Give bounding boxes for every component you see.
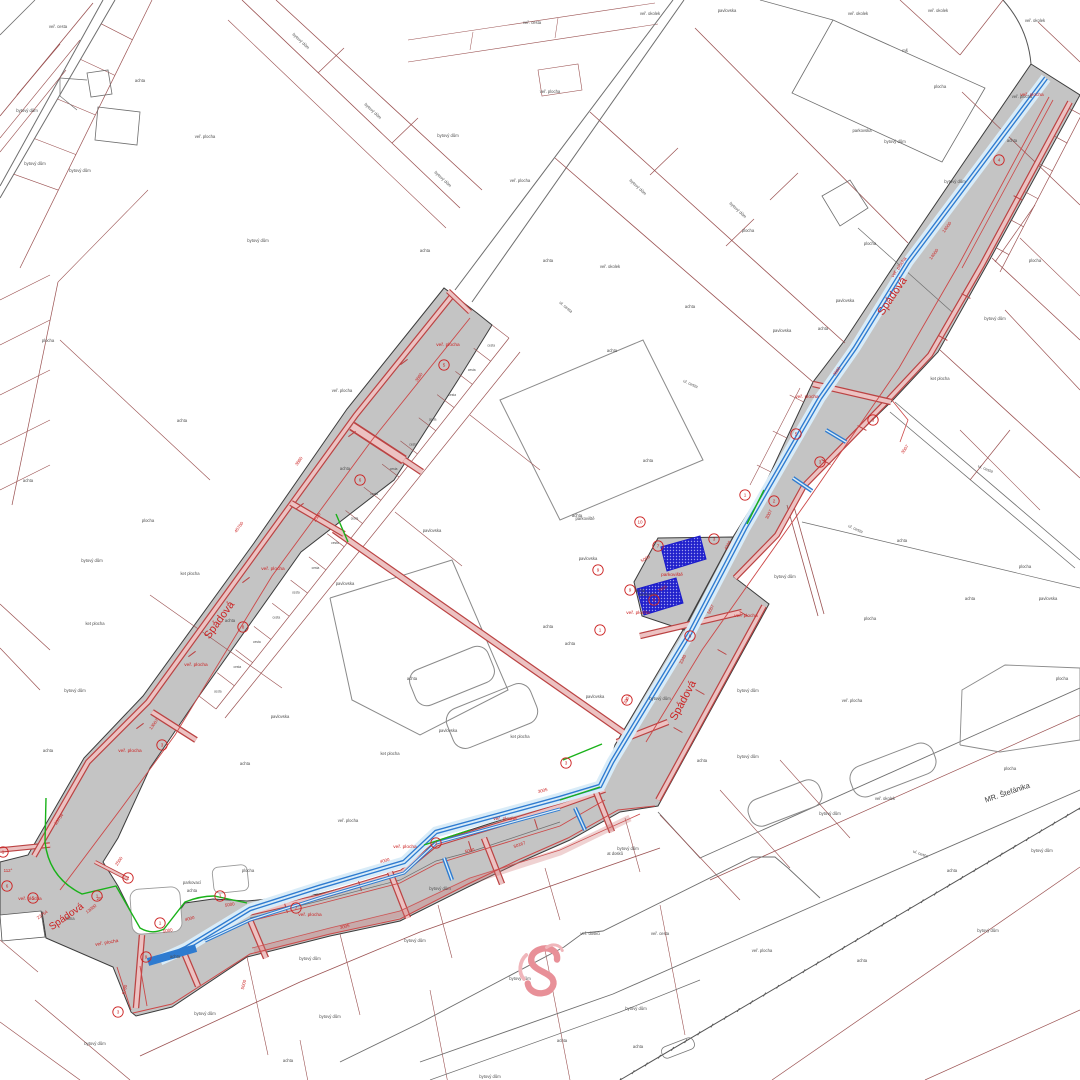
svg-text:pavlovska: pavlovska [773,328,792,333]
svg-text:bytový dům: bytový dům [81,558,103,563]
svg-text:1: 1 [159,921,162,926]
svg-text:plocha: plocha [864,616,877,621]
svg-text:achta: achta [135,78,146,83]
svg-text:7: 7 [295,906,298,911]
svg-text:cesta: cesta [331,541,339,545]
svg-text:112°: 112° [4,868,13,873]
svg-text:bytový dům: bytový dům [299,956,321,961]
svg-text:9: 9 [629,588,632,593]
svg-text:5: 5 [443,363,446,368]
svg-text:bytový dům: bytový dům [24,161,46,166]
svg-text:mš: mš [902,48,908,53]
svg-text:9: 9 [145,955,148,960]
svg-text:veř. plocha: veř. plocha [752,948,773,953]
svg-text:achta: achta [543,258,554,263]
svg-text:plocha: plocha [742,228,755,233]
svg-text:achta: achta [857,958,868,963]
svg-text:pavlovska: pavlovska [836,298,855,303]
svg-text:cesta: cesta [468,368,476,372]
svg-text:plocha: plocha [1056,676,1069,681]
svg-text:3: 3 [161,743,164,748]
svg-text:veř. plocha: veř. plocha [510,178,531,183]
svg-text:veř. plocha: veř. plocha [436,342,460,348]
svg-text:6: 6 [6,884,9,889]
svg-text:veř. cesta: veř. cesta [523,20,542,25]
svg-text:5: 5 [32,896,35,901]
svg-text:veř. okolek: veř. okolek [600,264,621,269]
svg-text:veř. plocha: veř. plocha [393,844,417,850]
svg-text:3: 3 [117,1010,120,1015]
svg-text:veř. plocha: veř. plocha [795,394,819,400]
svg-text:veř. cesta: veř. cesta [651,931,670,936]
svg-text:achta: achta [897,538,908,543]
svg-text:3: 3 [819,460,822,465]
svg-text:achta: achta [607,348,618,353]
svg-text:pavlovska: pavlovska [423,528,442,533]
svg-text:cesta: cesta [351,517,359,521]
svg-text:plocha: plocha [864,241,877,246]
svg-text:ket plocha: ket plocha [180,571,200,576]
svg-text:veř. okolek: veř. okolek [848,11,869,16]
svg-text:pavlovska: pavlovska [718,8,737,13]
svg-text:veř. plocha: veř. plocha [338,818,359,823]
svg-text:achta: achta [543,624,554,629]
svg-text:achta: achta [187,888,198,893]
svg-text:9: 9 [597,568,600,573]
svg-text:veř. plocha: veř. plocha [540,89,561,94]
svg-text:3: 3 [219,894,222,899]
svg-text:bytový dům: bytový dům [625,1006,647,1011]
svg-text:bytový dům: bytový dům [774,574,796,579]
svg-text:veř. plocha: veř. plocha [734,613,758,619]
svg-text:veř. plocha: veř. plocha [332,388,353,393]
svg-text:bytový dům: bytový dům [64,688,86,693]
svg-text:achta: achta [407,676,418,681]
svg-text:achta: achta [685,304,696,309]
svg-text:veř. okolek: veř. okolek [640,11,661,16]
svg-text:bytový dům: bytový dům [884,139,906,144]
svg-text:1: 1 [96,894,99,899]
svg-text:achta: achta [643,458,654,463]
svg-text:bytový dům: bytový dům [84,1041,106,1046]
svg-text:achta: achta [818,326,829,331]
svg-text:achta: achta [557,1038,568,1043]
svg-text:achta: achta [947,868,958,873]
svg-text:veř. okolek: veř. okolek [1025,18,1046,23]
svg-text:bytový dům: bytový dům [737,688,759,693]
svg-text:1: 1 [744,493,747,498]
svg-text:achta: achta [23,478,34,483]
svg-text:pavlovska: pavlovska [586,694,605,699]
svg-text:achta: achta [965,596,976,601]
svg-text:pavlovska: pavlovska [579,556,598,561]
svg-text:7: 7 [657,544,660,549]
svg-text:achta: achta [633,1044,644,1049]
svg-text:6: 6 [359,478,362,483]
svg-text:veř. plocha: veř. plocha [493,816,517,822]
svg-text:pavlovska: pavlovska [439,728,458,733]
svg-text:bytový dům: bytový dům [247,238,269,243]
svg-text:bytový dům: bytový dům [16,108,38,113]
svg-text:veř. plocha: veř. plocha [842,698,863,703]
svg-text:bytový dům: bytový dům [1031,848,1053,853]
svg-text:cesta: cesta [292,591,300,595]
svg-text:at dosků: at dosků [607,851,624,856]
svg-text:bytový dům: bytový dům [194,1011,216,1016]
svg-text:bytový dům: bytový dům [944,179,966,184]
svg-text:plocha: plocha [1019,564,1032,569]
svg-text:bytový dům: bytový dům [69,168,91,173]
svg-text:achta: achta [565,641,576,646]
svg-text:veř. cesta: veř. cesta [49,24,68,29]
svg-text:bytový dům: bytový dům [404,938,426,943]
svg-text:parkoviště: parkoviště [575,516,595,521]
svg-text:achta: achta [697,758,708,763]
svg-text:achta: achta [1007,138,1018,143]
svg-text:bytový dům: bytový dům [319,1014,341,1019]
svg-text:bytový dům: bytový dům [984,316,1006,321]
svg-text:bytový dům: bytový dům [649,696,671,701]
svg-text:pavlovska: pavlovska [1039,596,1058,601]
svg-text:achta: achta [283,1058,294,1063]
svg-text:3: 3 [565,761,568,766]
svg-text:4: 4 [998,158,1001,163]
svg-text:plocha: plocha [142,518,155,523]
svg-text:cesta: cesta [409,442,417,446]
svg-text:2: 2 [773,499,776,504]
svg-text:cesta: cesta [253,640,261,644]
svg-text:1: 1 [599,628,602,633]
svg-text:3: 3 [872,418,875,423]
svg-text:9: 9 [626,698,629,703]
svg-text:achta: achta [240,761,251,766]
svg-text:bytový dům: bytový dům [429,886,451,891]
svg-text:veř. plocha: veř. plocha [298,912,322,918]
svg-text:achta: achta [170,954,181,959]
svg-text:cesta: cesta [312,566,320,570]
svg-text:bytový dům: bytový dům [977,928,999,933]
svg-text:pavlovska: pavlovska [271,714,290,719]
svg-text:5: 5 [795,432,798,437]
svg-text:achta: achta [177,418,188,423]
svg-text:bytový dům: bytový dům [737,754,759,759]
svg-text:veř. okolek: veř. okolek [875,796,896,801]
svg-text:cesta: cesta [370,492,378,496]
svg-text:plocha: plocha [1004,766,1017,771]
svg-text:parkovací: parkovací [183,880,202,885]
svg-text:veř. plocha: veř. plocha [261,566,285,572]
svg-text:veř. dosků: veř. dosků [580,931,600,936]
svg-text:pavlovska: pavlovska [336,581,355,586]
svg-text:achta: achta [43,748,54,753]
svg-text:8: 8 [242,625,245,630]
svg-text:bytový dům: bytový dům [437,133,459,138]
svg-text:veř. plocha: veř. plocha [184,662,208,668]
svg-text:plocha: plocha [1029,258,1042,263]
svg-text:veř. plocha: veř. plocha [118,748,142,754]
svg-text:8: 8 [653,598,656,603]
svg-text:ket plocha: ket plocha [380,751,400,756]
svg-text:achta: achta [420,248,431,253]
svg-text:bytový dům: bytový dům [479,1074,501,1079]
svg-text:veř. plocha: veř. plocha [626,610,650,616]
svg-text:plocha: plocha [242,868,255,873]
svg-text:2: 2 [127,876,130,881]
svg-text:cesta: cesta [487,343,495,347]
svg-text:3: 3 [713,537,716,542]
svg-text:cesta: cesta [429,418,437,422]
svg-text:plocha: plocha [42,338,55,343]
svg-text:8: 8 [689,634,692,639]
svg-text:cesta: cesta [273,615,281,619]
svg-text:ket plocha: ket plocha [930,376,950,381]
svg-text:plocha: plocha [934,84,947,89]
svg-text:cesta: cesta [448,393,456,397]
svg-text:ket plocha: ket plocha [510,734,530,739]
svg-text:achta: achta [340,466,351,471]
svg-text:cesta: cesta [390,467,398,471]
svg-text:cesta: cesta [233,665,241,669]
svg-text:cesta: cesta [214,690,222,694]
svg-text:veř. plocha: veř. plocha [195,134,216,139]
svg-text:parkoviště: parkoviště [661,572,683,578]
svg-text:parkovska: parkovska [852,128,872,133]
svg-text:veř. okolek: veř. okolek [928,8,949,13]
svg-text:veř. plocha: veř. plocha [1020,92,1044,98]
svg-text:ket plocha: ket plocha [85,621,105,626]
svg-text:1: 1 [2,850,5,855]
svg-text:3: 3 [435,841,438,846]
svg-text:10: 10 [637,520,643,525]
svg-text:bytový dům: bytový dům [819,811,841,816]
